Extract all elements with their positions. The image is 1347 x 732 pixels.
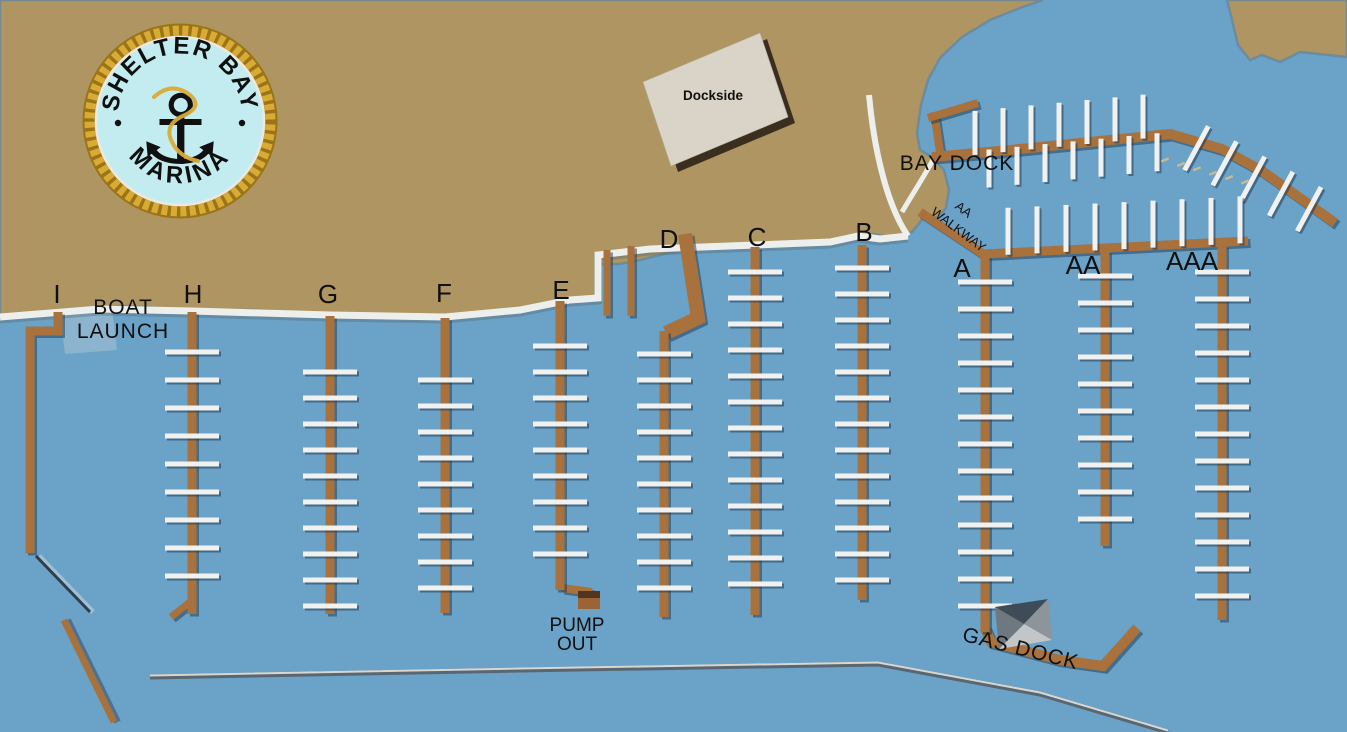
logo-dot <box>115 120 121 126</box>
logo-dot <box>239 120 245 126</box>
dock-label-e: E <box>552 275 569 305</box>
pump-out-box <box>578 591 600 609</box>
anchor-icon: ⚓ <box>137 77 223 184</box>
boat-launch-line2: LAUNCH <box>77 320 169 343</box>
dock-D <box>664 331 667 620</box>
marina-logo: SHELTER BAYMARINA⚓ <box>84 25 277 218</box>
dockside-label: Dockside <box>683 88 744 103</box>
dock-label-c: C <box>748 222 767 252</box>
bay-dock-label: BAY DOCK <box>900 152 1015 175</box>
dock-label-i: I <box>53 279 60 309</box>
marina-map-svg: IBOATLAUNCHHGFEDCBAAAAAABAY DOCKAAWALKWA… <box>0 0 1347 732</box>
dock-label-h: H <box>184 279 203 309</box>
dock-label-aaa: AAA <box>1166 246 1219 276</box>
pump-out-line2: OUT <box>557 634 598 655</box>
dock-F <box>445 318 448 616</box>
land-top-right <box>1227 0 1347 62</box>
pump-out-line1: PUMP <box>550 615 605 636</box>
dock-label-d: D <box>660 224 679 254</box>
dock-label-f: F <box>436 278 452 308</box>
dock-label-b: B <box>855 217 872 247</box>
marina-map-canvas: IBOATLAUNCHHGFEDCBAAAAAABAY DOCKAAWALKWA… <box>0 0 1347 732</box>
dock-label-aa: AA <box>1066 250 1101 280</box>
dock-label-g: G <box>318 279 338 309</box>
boat-launch-line1: BOAT <box>93 296 153 319</box>
dock-label-a: A <box>953 253 971 283</box>
dock-G <box>330 316 333 617</box>
dock-AA <box>1105 251 1108 549</box>
